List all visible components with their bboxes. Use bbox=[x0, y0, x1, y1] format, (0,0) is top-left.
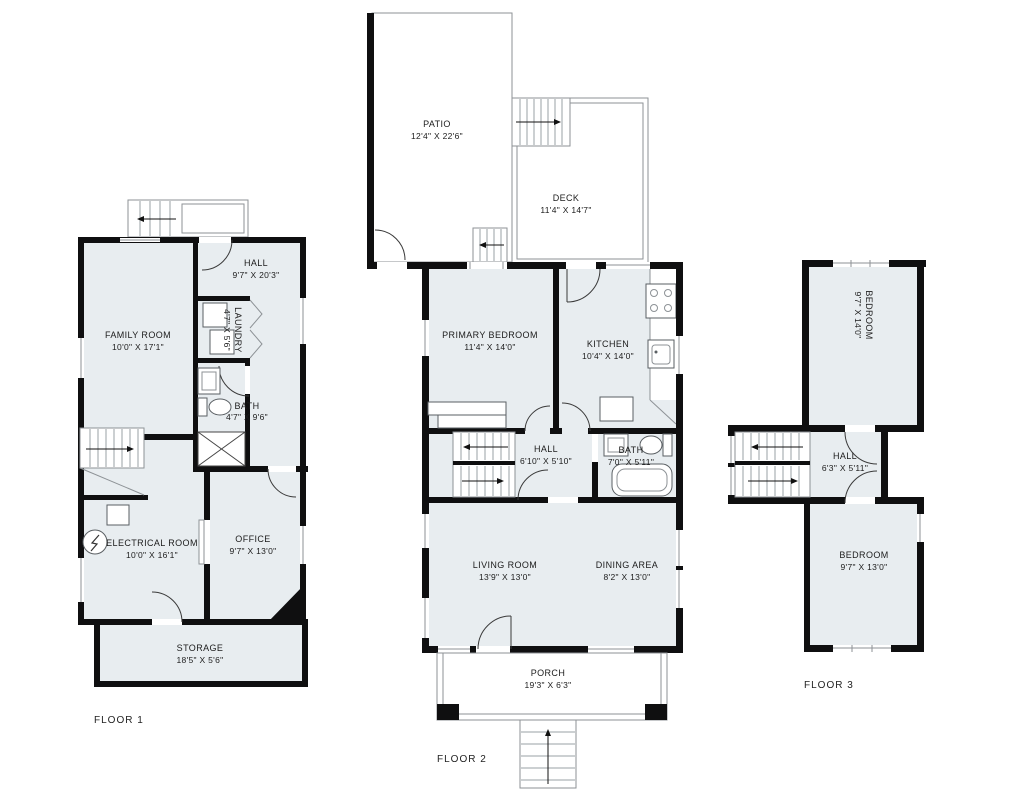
closet-door bbox=[428, 402, 506, 415]
bedroom3a-dims: 9'7" X 14'0" bbox=[853, 292, 863, 339]
bedroom3b-label: BEDROOM bbox=[839, 550, 888, 560]
porch-post bbox=[645, 704, 667, 720]
bedroom3b-dims: 9'7" X 13'0" bbox=[841, 562, 888, 572]
family-room-dims: 10'0" X 17'1" bbox=[112, 342, 164, 352]
floor3-title: FLOOR 3 bbox=[804, 680, 854, 691]
floor3-stairs bbox=[735, 432, 810, 497]
floor2-stairs bbox=[453, 432, 515, 497]
dining-area-dims: 8'2" X 13'0" bbox=[604, 572, 651, 582]
hall2-dims: 6'10" X 5'10" bbox=[520, 456, 572, 466]
patio-dims: 12'4" X 22'6" bbox=[411, 131, 463, 141]
porch-label: PORCH bbox=[531, 668, 566, 678]
storage-dims: 18'5" X 5'6" bbox=[177, 655, 224, 665]
hall3-dims: 6'3" X 5'11" bbox=[822, 463, 868, 473]
electrical-room-label: ELECTRICAL ROOM bbox=[106, 538, 198, 548]
dining-area-label: DINING AREA bbox=[596, 560, 658, 570]
floor-3: BEDROOM 9'7" X 14'0" HALL 6'3" X 5'11" B… bbox=[728, 260, 926, 691]
floor-1: FAMILY ROOM 10'0" X 17'1" HALL 9'7" X 20… bbox=[78, 200, 308, 726]
closet-door bbox=[438, 415, 506, 428]
kitchen-island bbox=[600, 397, 633, 421]
hall1-label: HALL bbox=[244, 258, 268, 268]
floor-2: PATIO 12'4" X 22'6" DECK 11'4" X 14'7" P… bbox=[367, 13, 683, 788]
deck-label: DECK bbox=[553, 193, 580, 203]
bath1-label: BATH bbox=[235, 401, 260, 411]
kitchen-label: KITCHEN bbox=[587, 339, 629, 349]
stove bbox=[646, 284, 676, 318]
hall1-dims: 9'7" X 20'3" bbox=[233, 270, 280, 280]
hall3-label: HALL bbox=[833, 451, 857, 461]
floor2-title: FLOOR 2 bbox=[437, 754, 487, 765]
deck-dims: 11'4" X 14'7" bbox=[540, 205, 591, 215]
family-room-label: FAMILY ROOM bbox=[105, 330, 171, 340]
electrical-symbol bbox=[83, 530, 107, 554]
electrical-room-dims: 10'0" X 16'1" bbox=[126, 550, 178, 560]
hall2-label: HALL bbox=[534, 444, 558, 454]
bath1-dims: 4'7" X 9'6" bbox=[226, 412, 268, 422]
patio-label: PATIO bbox=[423, 119, 451, 129]
bath2-dims: 7'0" X 5'11" bbox=[608, 457, 654, 467]
porch-post bbox=[437, 704, 459, 720]
kitchen-dims: 10'4" X 14'0" bbox=[582, 351, 634, 361]
electrical-panel bbox=[107, 505, 129, 525]
floor2-patio-deck bbox=[367, 13, 648, 265]
living-room-dims: 13'9" X 13'0" bbox=[479, 572, 531, 582]
bedroom3a-label: BEDROOM bbox=[864, 290, 874, 339]
floor-plan-canvas: FAMILY ROOM 10'0" X 17'1" HALL 9'7" X 20… bbox=[0, 0, 1024, 791]
toilet-tank bbox=[198, 398, 207, 416]
toilet-tank bbox=[663, 434, 672, 456]
living-room-label: LIVING ROOM bbox=[473, 560, 537, 570]
floor1-title: FLOOR 1 bbox=[94, 715, 144, 726]
office-dims: 9'7" X 13'0" bbox=[230, 546, 277, 556]
office-label: OFFICE bbox=[235, 534, 270, 544]
primary-bedroom-dims: 11'4" X 14'0" bbox=[464, 342, 515, 352]
storage-label: STORAGE bbox=[177, 643, 224, 653]
laundry-label: LAUNDRY bbox=[233, 307, 243, 353]
floor1-entry-stoop bbox=[128, 200, 248, 237]
porch-dims: 19'3" X 6'3" bbox=[525, 680, 572, 690]
pocket-door-leaf bbox=[199, 520, 204, 564]
bath2-label: BATH bbox=[619, 445, 644, 455]
floor-plan-page: FAMILY ROOM 10'0" X 17'1" HALL 9'7" X 20… bbox=[0, 0, 1024, 791]
laundry-dims: 4'7" X 5'6" bbox=[222, 309, 232, 351]
primary-bedroom-label: PRIMARY BEDROOM bbox=[442, 330, 538, 340]
